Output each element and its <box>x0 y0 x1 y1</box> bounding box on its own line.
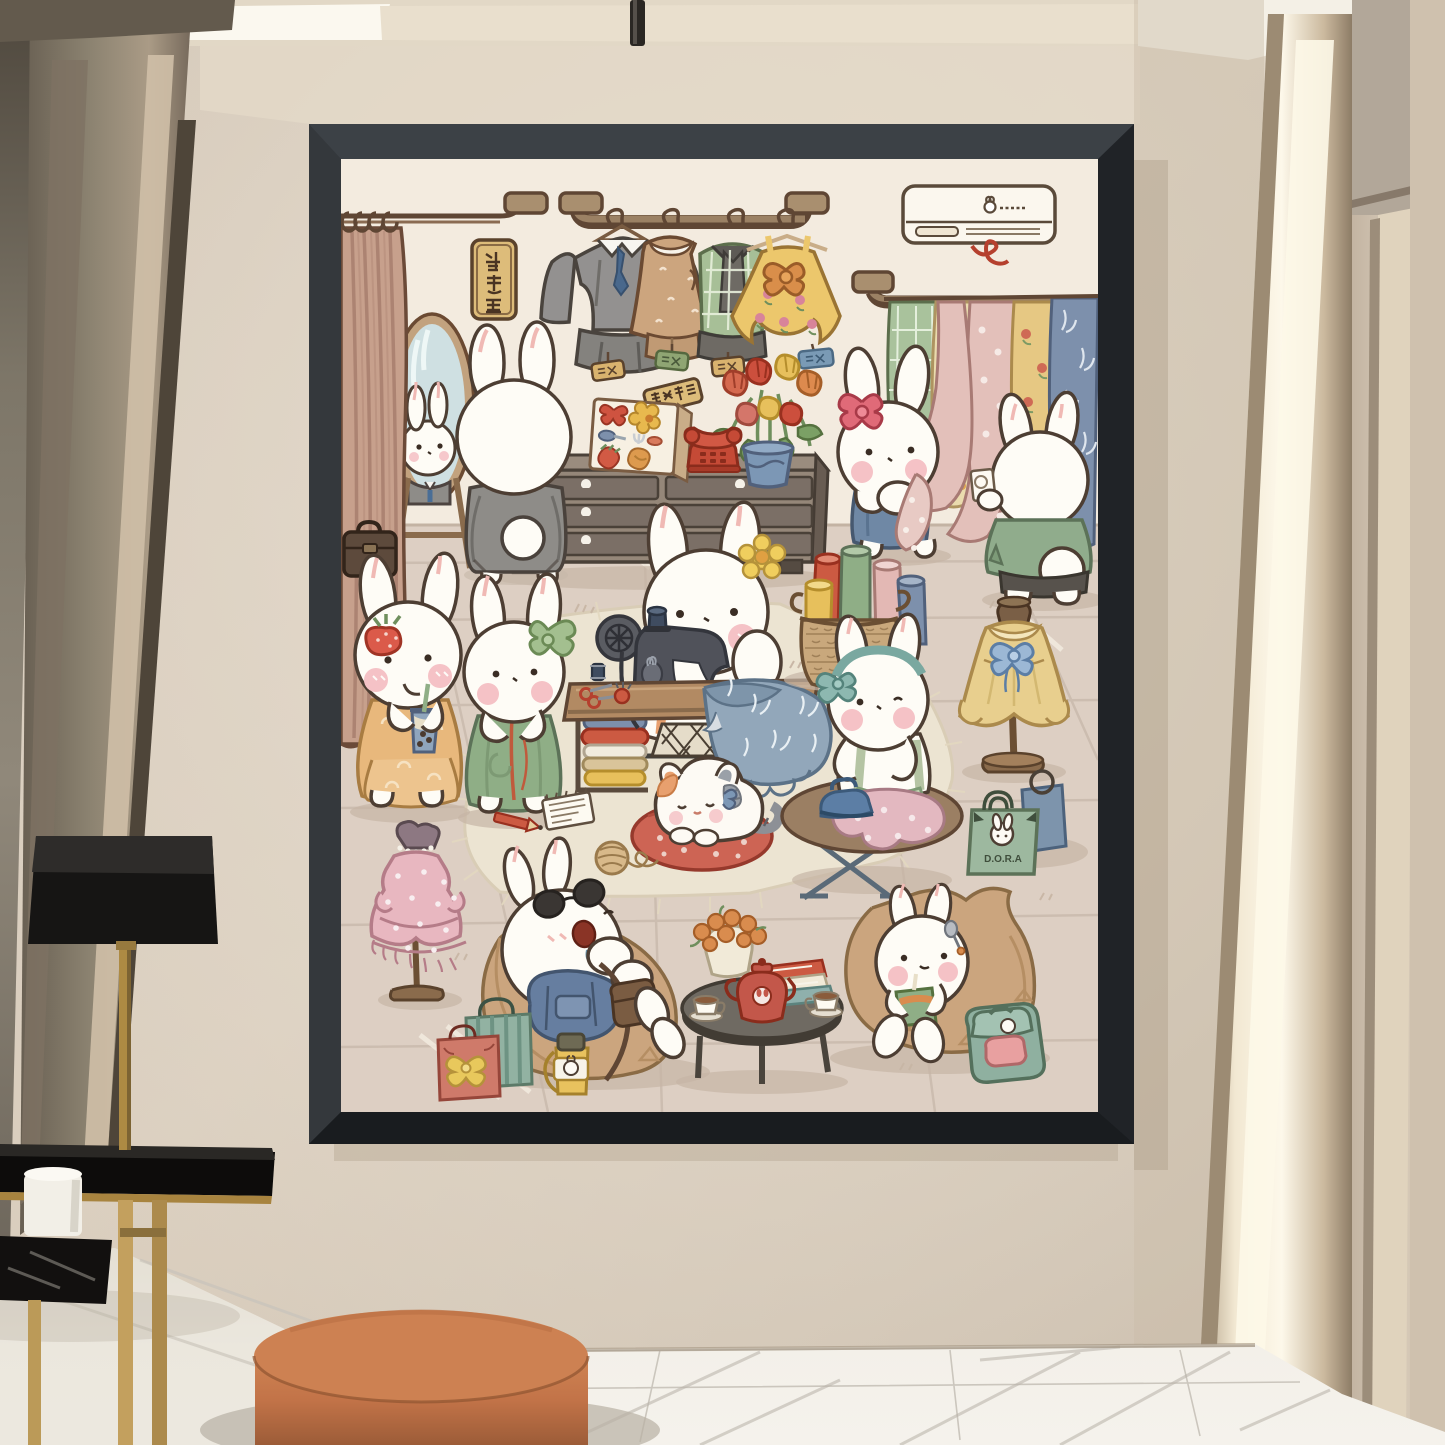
svg-text:D.O.R.A: D.O.R.A <box>984 854 1022 865</box>
